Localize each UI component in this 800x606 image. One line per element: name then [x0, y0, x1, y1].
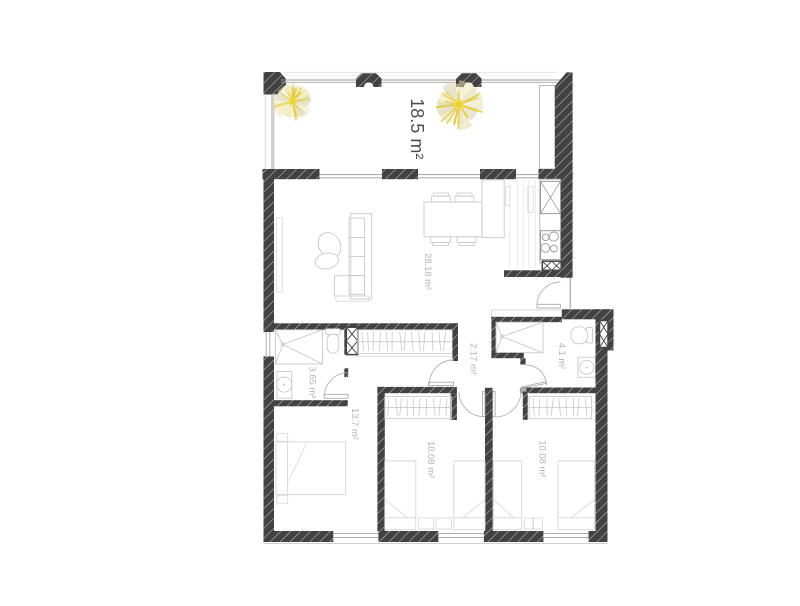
svg-text:2.17 m²: 2.17 m² [468, 343, 479, 375]
svg-text:10.08 m²: 10.08 m² [538, 440, 549, 477]
svg-text:18.5 m²: 18.5 m² [407, 98, 427, 159]
svg-text:10.08 m²: 10.08 m² [426, 441, 437, 478]
svg-text:13.7 m²: 13.7 m² [350, 408, 361, 440]
svg-text:4.1 m²: 4.1 m² [557, 343, 568, 370]
svg-text:3.65 m²: 3.65 m² [308, 367, 319, 399]
svg-text:28.18 m²: 28.18 m² [423, 253, 434, 290]
